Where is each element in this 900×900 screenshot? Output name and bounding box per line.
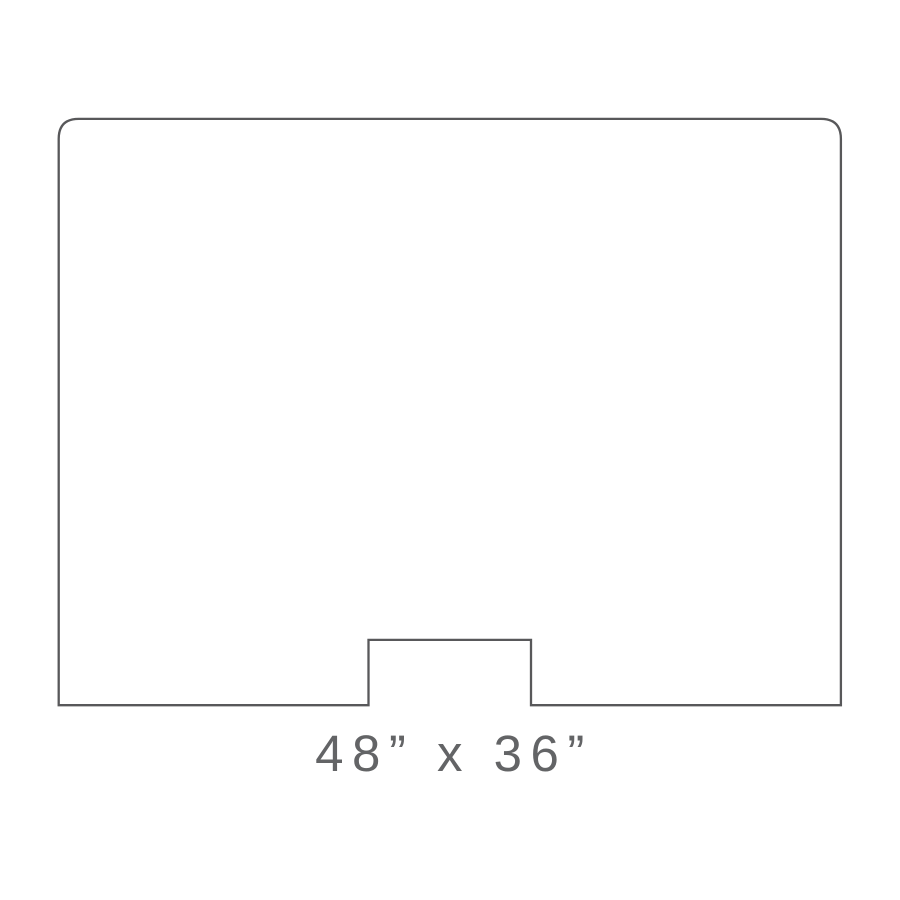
svg-text:48” x 36”: 48” x 36” (315, 725, 593, 782)
